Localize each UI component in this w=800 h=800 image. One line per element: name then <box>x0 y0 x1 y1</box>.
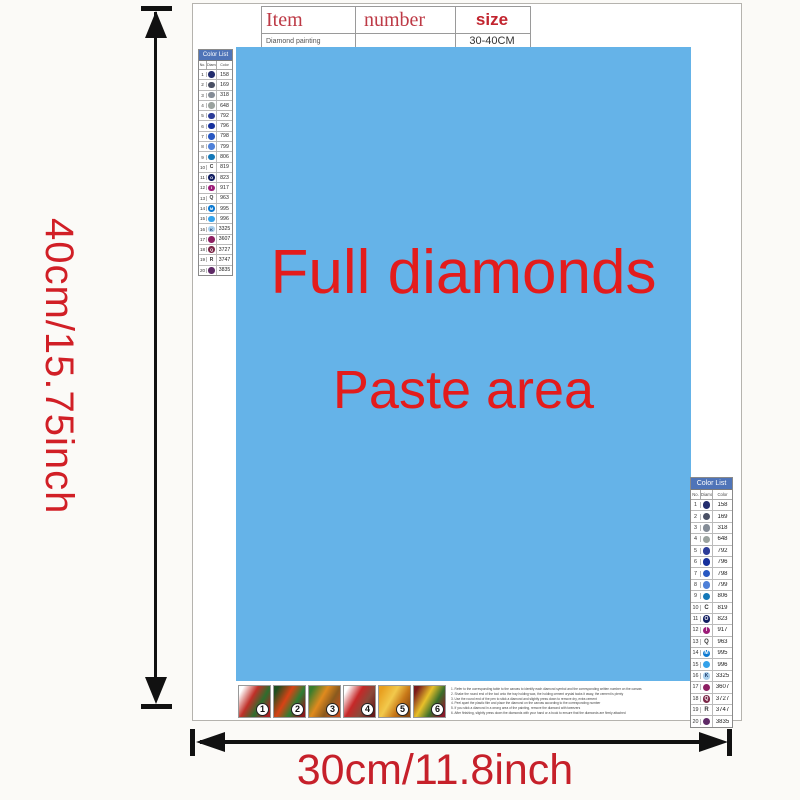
color-row: 16K3325 <box>691 671 732 682</box>
number-header: number <box>356 7 456 33</box>
vertical-arrow-line <box>154 12 157 678</box>
dmc-color-code: 169 <box>217 82 232 88</box>
product-diagram: 40cm/15.75inch 30cm/11.8inch Item number… <box>0 0 800 800</box>
diamond-letter-symbol: Q <box>704 639 709 645</box>
color-row: 2169 <box>199 80 232 90</box>
color-row: 9806 <box>199 152 232 162</box>
diamond-symbol-icon <box>207 266 217 275</box>
diamond-dot-icon: M <box>703 650 711 658</box>
diamond-symbol-icon: I <box>207 183 217 192</box>
dmc-color-code: 3747 <box>217 257 232 263</box>
paste-area-title-line2: Paste area <box>236 359 691 421</box>
color-row: 4648 <box>691 534 732 545</box>
diamond-letter-symbol: C <box>704 605 708 611</box>
diamond-dot-icon <box>208 267 215 274</box>
diamond-symbol-icon <box>207 132 217 141</box>
color-row: 18Q3727 <box>199 245 232 255</box>
diamond-symbol-icon: I <box>701 625 713 635</box>
diamond-symbol-icon <box>207 70 217 79</box>
step-image-2: 2 <box>273 685 306 718</box>
diamond-symbol-icon <box>207 91 217 100</box>
diamond-symbol-icon <box>207 111 217 120</box>
diamond-symbol-icon: M <box>701 648 713 658</box>
step-image-3: 3 <box>308 685 341 718</box>
diamond-symbol-icon <box>701 591 713 601</box>
color-row: 7798 <box>691 568 732 579</box>
color-row-number: 2 <box>199 82 207 87</box>
color-row-number: 15 <box>691 662 701 668</box>
dmc-color-code: 796 <box>713 559 732 565</box>
canvas-sheet: Item number size Diamond painting 30-40C… <box>192 3 742 721</box>
diamond-dot-icon <box>703 501 711 509</box>
col-no: No. <box>199 61 207 69</box>
dmc-color-code: 917 <box>713 627 732 633</box>
color-row-number: 5 <box>199 113 207 118</box>
dmc-color-code: 3607 <box>217 236 232 242</box>
dmc-color-code: 995 <box>217 206 232 212</box>
diamond-dot-icon <box>703 524 711 532</box>
color-row: 8799 <box>691 580 732 591</box>
dmc-color-code: 648 <box>217 103 232 109</box>
color-list-left: Color List No. Diamond Color 11582169331… <box>198 49 233 276</box>
dmc-color-code: 996 <box>713 662 732 668</box>
dmc-color-code: 3325 <box>713 673 732 679</box>
diamond-symbol-icon: O <box>207 173 217 182</box>
color-row-number: 12 <box>691 627 701 633</box>
dmc-color-code: 648 <box>713 536 732 542</box>
color-list-column-headers: No. Diamond Color <box>691 490 732 500</box>
dmc-color-code: 3325 <box>217 226 232 232</box>
color-row-number: 9 <box>691 593 701 599</box>
diamond-dot-icon: K <box>208 226 215 233</box>
color-row-number: 17 <box>199 237 207 242</box>
diamond-dot-icon <box>208 143 215 150</box>
dmc-color-code: 3835 <box>713 719 732 725</box>
step-number-badge: 3 <box>326 703 339 716</box>
diamond-letter-symbol: Q <box>210 195 214 201</box>
color-row-number: 15 <box>199 216 207 221</box>
dmc-color-code: 792 <box>713 548 732 554</box>
instruction-line: 6. After finishing, slightly press down … <box>451 711 733 716</box>
diamond-dot-icon <box>703 513 711 521</box>
dmc-color-code: 798 <box>217 133 232 139</box>
diamond-symbol-icon <box>701 580 713 590</box>
diamond-dot-icon: Q <box>208 246 215 253</box>
color-row-number: 20 <box>199 268 207 273</box>
diamond-dot-icon <box>208 102 215 109</box>
color-row-number: 1 <box>691 502 701 508</box>
dmc-color-code: 963 <box>217 195 232 201</box>
horizontal-arrow-line <box>200 740 702 744</box>
diamond-symbol-icon <box>701 568 713 578</box>
diamond-symbol-icon <box>701 546 713 556</box>
col-color: Color <box>713 490 732 499</box>
diamond-dot-icon: K <box>703 672 711 680</box>
color-row: 1158 <box>691 500 732 511</box>
diamond-dot-icon <box>703 593 711 601</box>
color-row-number: 10 <box>199 165 207 170</box>
col-diamond: Diamond <box>207 61 217 69</box>
paste-area-title-line1: Full diamonds <box>236 237 691 308</box>
dmc-color-code: 169 <box>713 514 732 520</box>
step-number-badge: 1 <box>256 703 269 716</box>
step-image-1: 1 <box>238 685 271 718</box>
color-row: 1158 <box>199 70 232 80</box>
diamond-dot-icon <box>703 558 711 566</box>
diamond-dot-icon <box>703 547 711 555</box>
diamond-dot-icon <box>703 718 711 726</box>
color-row-number: 18 <box>199 247 207 252</box>
dmc-color-code: 792 <box>217 113 232 119</box>
color-row-number: 11 <box>691 616 701 622</box>
size-header: size <box>456 7 528 33</box>
dmc-color-code: 158 <box>713 502 732 508</box>
step-number-badge: 4 <box>361 703 374 716</box>
diamond-symbol-icon <box>701 557 713 567</box>
color-row: 10C819 <box>691 603 732 614</box>
color-row-number: 10 <box>691 605 701 611</box>
color-row: 3318 <box>691 523 732 534</box>
item-table-data-row: Diamond painting 30-40CM <box>262 34 530 48</box>
color-row-number: 5 <box>691 548 701 554</box>
color-row: 3318 <box>199 91 232 101</box>
diamond-symbol-icon <box>701 500 713 510</box>
color-list-title: Color List <box>691 478 732 490</box>
item-table-header-row: Item number size <box>262 7 530 34</box>
dmc-color-code: 3727 <box>217 247 232 253</box>
color-row: 6796 <box>199 121 232 131</box>
color-row-number: 9 <box>199 155 207 160</box>
paste-area: Full diamonds Paste area <box>236 47 691 681</box>
color-row: 9806 <box>691 591 732 602</box>
diamond-symbol-icon <box>701 511 713 521</box>
color-list-rows: 11582169331846485792679677988799980610C8… <box>199 70 232 275</box>
color-row-number: 12 <box>199 185 207 190</box>
size-value: 30-40CM <box>456 34 528 48</box>
diamond-dot-icon <box>703 581 711 589</box>
step-image-6: 6 <box>413 685 446 718</box>
diamond-dot-icon <box>703 570 711 578</box>
color-row: 14M995 <box>691 648 732 659</box>
number-value <box>356 34 456 48</box>
diamond-dot-icon <box>208 82 215 89</box>
color-row: 15996 <box>691 659 732 670</box>
step-number-badge: 5 <box>396 703 409 716</box>
color-row-number: 2 <box>691 514 701 520</box>
diamond-letter-symbol: C <box>210 164 214 170</box>
dmc-color-code: 798 <box>713 571 732 577</box>
color-row-number: 13 <box>691 639 701 645</box>
color-row: 5792 <box>691 546 732 557</box>
horizontal-dimension-label: 30cm/11.8inch <box>160 746 710 795</box>
diamond-symbol-icon <box>207 121 217 130</box>
color-row-number: 14 <box>199 206 207 211</box>
dmc-color-code: 318 <box>713 525 732 531</box>
diamond-symbol-icon <box>701 523 713 533</box>
dmc-color-code: 819 <box>217 164 232 170</box>
color-row-number: 4 <box>691 536 701 542</box>
step-image-4: 4 <box>343 685 376 718</box>
color-row: 14M995 <box>199 204 232 214</box>
color-row: 11O823 <box>691 614 732 625</box>
diamond-symbol-icon: O <box>701 614 713 624</box>
diamond-dot-icon <box>208 133 215 140</box>
color-row-number: 7 <box>199 134 207 139</box>
color-row-number: 16 <box>199 227 207 232</box>
diamond-symbol-icon: C <box>207 163 217 172</box>
dmc-color-code: 799 <box>713 582 732 588</box>
color-row: 16K3325 <box>199 224 232 234</box>
diamond-symbol-icon <box>207 142 217 151</box>
color-row: 12I917 <box>691 625 732 636</box>
color-row-number: 20 <box>691 719 701 725</box>
color-row: 203835 <box>199 266 232 275</box>
color-row-number: 11 <box>199 175 207 180</box>
diamond-dot-icon: O <box>703 615 711 623</box>
diamond-dot-icon <box>208 92 215 99</box>
diamond-symbol-icon: Q <box>701 637 713 647</box>
color-row-number: 6 <box>199 124 207 129</box>
dmc-color-code: 963 <box>713 639 732 645</box>
diamond-dot-icon: O <box>208 174 215 181</box>
diamond-dot-icon: M <box>208 205 215 212</box>
diamond-symbol-icon <box>701 659 713 669</box>
color-row-number: 14 <box>691 650 701 656</box>
diamond-symbol-icon <box>207 101 217 110</box>
dmc-color-code: 819 <box>713 605 732 611</box>
diamond-symbol-icon: Q <box>207 245 217 254</box>
step-number-badge: 2 <box>291 703 304 716</box>
color-row: 13Q963 <box>691 637 732 648</box>
diamond-symbol-icon: C <box>701 603 713 613</box>
diamond-symbol-icon <box>207 235 217 244</box>
color-list-title: Color List <box>199 50 232 61</box>
instruction-text-block: 1. Refer to the corresponding table to t… <box>451 687 733 716</box>
color-row: 2169 <box>691 511 732 522</box>
color-row: 173607 <box>199 235 232 245</box>
diamond-symbol-icon <box>207 152 217 161</box>
diamond-symbol-icon: M <box>207 204 217 213</box>
diamond-dot-icon: I <box>208 185 215 192</box>
dmc-color-code: 995 <box>713 650 732 656</box>
diamond-dot-icon <box>208 216 215 223</box>
horizontal-arrow-right-cap <box>727 729 732 756</box>
dmc-color-code: 3835 <box>217 267 232 273</box>
diamond-symbol-icon <box>701 534 713 544</box>
diamond-symbol-icon <box>207 80 217 89</box>
vertical-arrow-down-head <box>145 677 167 704</box>
color-row: 11O823 <box>199 173 232 183</box>
color-row: 19R3747 <box>199 255 232 265</box>
col-diamond: Diamond <box>701 490 713 499</box>
color-row: 5792 <box>199 111 232 121</box>
diamond-dot-icon <box>208 71 215 78</box>
color-row: 10C819 <box>199 163 232 173</box>
diamond-dot-icon <box>208 113 215 120</box>
vertical-dimension-label: 40cm/15.75inch <box>36 218 81 514</box>
dmc-color-code: 796 <box>217 123 232 129</box>
diamond-dot-icon <box>208 123 215 130</box>
dmc-color-code: 806 <box>713 593 732 599</box>
color-row: 4648 <box>199 101 232 111</box>
color-row-number: 6 <box>691 559 701 565</box>
diamond-letter-symbol: R <box>210 257 214 263</box>
color-row-number: 13 <box>199 196 207 201</box>
col-no: No. <box>691 490 701 499</box>
dmc-color-code: 806 <box>217 154 232 160</box>
color-row-number: 16 <box>691 673 701 679</box>
diamond-dot-icon <box>208 154 215 161</box>
dmc-color-code: 823 <box>217 175 232 181</box>
step-number-badge: 6 <box>431 703 444 716</box>
diamond-dot-icon: I <box>703 627 711 635</box>
color-row-number: 4 <box>199 103 207 108</box>
color-row: 7798 <box>199 132 232 142</box>
color-row-number: 19 <box>199 257 207 262</box>
color-row-number: 3 <box>199 93 207 98</box>
dmc-color-code: 917 <box>217 185 232 191</box>
diamond-symbol-icon: K <box>207 224 217 233</box>
color-list-column-headers: No. Diamond Color <box>199 61 232 70</box>
instruction-step-images: 123456 <box>238 685 446 718</box>
color-row: 13Q963 <box>199 194 232 204</box>
color-row: 6796 <box>691 557 732 568</box>
item-value: Diamond painting <box>262 34 356 48</box>
color-row: 203835 <box>691 716 732 726</box>
item-info-table: Item number size Diamond painting 30-40C… <box>261 6 531 49</box>
dmc-color-code: 318 <box>217 92 232 98</box>
step-image-5: 5 <box>378 685 411 718</box>
dmc-color-code: 823 <box>713 616 732 622</box>
dmc-color-code: 996 <box>217 216 232 222</box>
color-row-number: 1 <box>199 72 207 77</box>
vertical-arrow-bottom-cap <box>141 704 172 709</box>
dmc-color-code: 158 <box>217 72 232 78</box>
col-color: Color <box>217 61 232 69</box>
color-row: 12I917 <box>199 183 232 193</box>
color-row: 8799 <box>199 142 232 152</box>
diamond-symbol-icon <box>701 716 713 726</box>
diamond-symbol-icon: R <box>207 255 217 264</box>
diamond-dot-icon <box>208 236 215 243</box>
diamond-dot-icon <box>703 536 711 544</box>
color-row-number: 7 <box>691 571 701 577</box>
color-row-number: 8 <box>199 144 207 149</box>
color-row: 15996 <box>199 214 232 224</box>
color-row-number: 8 <box>691 582 701 588</box>
diamond-symbol-icon: Q <box>207 194 217 203</box>
color-row-number: 3 <box>691 525 701 531</box>
diamond-symbol-icon: K <box>701 671 713 681</box>
item-header: Item <box>262 7 356 33</box>
diamond-dot-icon <box>703 661 711 669</box>
dmc-color-code: 799 <box>217 144 232 150</box>
diamond-symbol-icon <box>207 214 217 223</box>
